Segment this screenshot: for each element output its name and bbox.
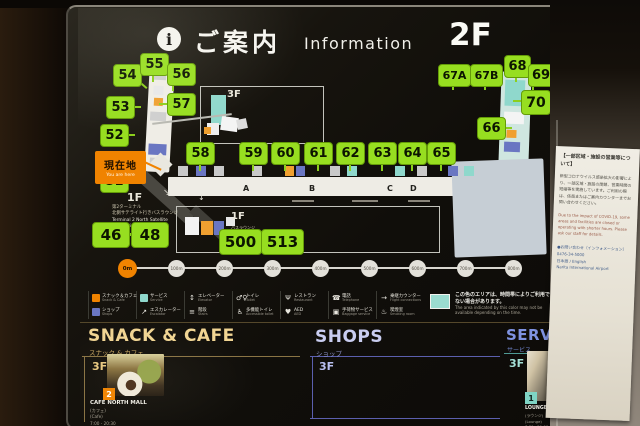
you-are-here-marker: 現在地 You are here [95, 151, 146, 184]
legend-en: Elevator [198, 299, 224, 303]
scale-mark: 600m [409, 260, 426, 277]
gate-tag-56: 56 [167, 63, 196, 86]
gate-tag-67b: 67B [470, 64, 503, 87]
cafe-caption: (カフェ) (Cafe) 7:00 - 20:30 [90, 408, 116, 426]
gate-tag-55: 55 [140, 53, 169, 76]
inset-3f-label: 3F [227, 89, 241, 100]
map-room-shop [196, 166, 206, 176]
legend-item-smoking: ♨ 喫煙室Smoking room [380, 306, 426, 318]
legend-item-shops: ショップShops [92, 306, 138, 318]
snack-floor-tag: 3F [92, 360, 107, 373]
walkway-arrow-icon: ↘ [163, 188, 171, 198]
snack-item-badge: 2 [103, 388, 115, 400]
shops-title: SHOPS [315, 327, 383, 347]
gate-tag-67a: 67A [438, 64, 471, 87]
notice-placard: 【一部区域・施設の営業等について】 新型コロナウイルス感染拡大の影響により、一部… [546, 146, 640, 421]
map-room [330, 166, 340, 176]
gate-tag-57: 57 [167, 93, 196, 116]
scale-mark: 800m [505, 260, 522, 277]
smoking-room-icon: ♨ [380, 308, 388, 316]
shops-subtitle: ショップ [316, 348, 342, 358]
snack-cafe-title: SNACK & CAFE [88, 326, 235, 346]
map-tiny-label [352, 200, 378, 202]
gate-tag-46: 46 [92, 222, 130, 248]
you-are-here-jp: 現在地 [104, 157, 137, 172]
placard-contact: ●お問い合わせ（インフォメーション） 0476-34-5000 日本語 / En… [556, 244, 631, 273]
map-room-service [395, 166, 405, 176]
caption-line: 7:00 - 20:30 [90, 421, 116, 426]
map-room-snack [201, 221, 213, 235]
shops-floor-tag: 3F [319, 360, 334, 373]
placard-title: 【一部区域・施設の営業等について】 [560, 153, 635, 171]
sign-title-japanese: ご案内 [194, 23, 281, 59]
map-room-snack [506, 130, 516, 138]
elevator-icon: ↕ [188, 294, 196, 302]
gate-tag-64: 64 [398, 142, 427, 165]
legend-en: Stairs [198, 313, 208, 317]
legend-en: Toilet [246, 299, 259, 303]
gate-tag-68: 68 [504, 55, 531, 78]
walkway-arrow-icon: ↓ [198, 193, 205, 202]
service-item-badge: 1 [525, 392, 537, 404]
map-room [185, 217, 199, 235]
toilet-icon: ♂♀ [236, 294, 244, 302]
legend-item-accessible-toilet: ♿ 多機能トイレAccessible toilet [236, 306, 282, 318]
scale-mark: 300m [264, 260, 281, 277]
shop-color-swatch [92, 308, 100, 316]
gate-tag-70: 70 [521, 90, 551, 115]
legend-en: AED [294, 313, 303, 317]
sign-title-english: Information [304, 34, 413, 53]
caption-line: 北側サテライト行きバスラウンジ [112, 211, 178, 217]
legend-item-escalator: ↗ エスカレーターEscalator [140, 306, 186, 318]
scale-mark: 700m [457, 260, 474, 277]
legend-en: Escalator [150, 313, 181, 317]
gate-tag-61: 61 [304, 142, 333, 165]
snack-vline [84, 356, 85, 422]
legend-item-service: サービスService [140, 292, 186, 304]
legend-en: Restaurant [294, 299, 316, 303]
map-room [150, 112, 166, 122]
gate-tag-48: 48 [131, 222, 169, 248]
transfer-counter-icon: → [380, 294, 388, 302]
gate-tag-66: 66 [477, 117, 506, 140]
wheelchair-icon: ♿ [236, 308, 244, 316]
scale-mark: 100m [168, 260, 185, 277]
gate-tag-53: 53 [106, 96, 135, 119]
information-icon: i [157, 27, 181, 51]
gate-tag-52: 52 [100, 124, 129, 147]
background-wall-left [0, 0, 74, 426]
service-floor-tag: 3F [509, 357, 524, 370]
availability-note-jp: この色のエリアは、時間帯によりご利用できない場合があります。 [455, 292, 555, 306]
gate-letter-b: B [309, 184, 315, 193]
map-room [178, 166, 188, 176]
gate-letter-d: D [410, 184, 417, 193]
note-color-swatch [430, 294, 450, 309]
stairs-icon: ≡ [188, 308, 196, 316]
gate-stem [513, 100, 521, 102]
map-room-snack [204, 127, 211, 134]
sections-divider [80, 322, 556, 323]
legend-item-elevator: ↕ エレベーターElevator [188, 292, 234, 304]
legend-en: Accessible toilet [246, 313, 274, 317]
legend-en: Shops [102, 313, 120, 317]
legend-item-aed: ♥ AEDAED [284, 306, 330, 318]
gate-tag-513: 513 [261, 229, 304, 255]
map-room [236, 118, 248, 130]
baggage-icon: ▣ [332, 308, 340, 316]
legend-en: Service [150, 299, 168, 303]
gate-tag-58: 58 [186, 142, 215, 165]
legend-item-snack: スナック＆カフェSnack & Cafe [92, 292, 138, 304]
legend-item-toilet: ♂♀ トイレToilet [236, 292, 282, 304]
escalator-icon: ↗ [140, 308, 148, 316]
gate-tag-54: 54 [113, 64, 142, 87]
legend-item-stairs: ≡ 階段Stairs [188, 306, 234, 318]
map-tiny-label [408, 200, 430, 202]
legend-item-baggage: ▣ 手荷物サービスBaggage service [332, 306, 378, 318]
map-room [214, 166, 224, 176]
gate-tag-62: 62 [336, 142, 365, 165]
map-room [153, 86, 163, 96]
legend-en: Snack & Cafe [102, 299, 137, 303]
gate-tag-59: 59 [239, 142, 268, 165]
restaurant-icon: Ψ [284, 294, 292, 302]
floor-indicator-2f: 2F [449, 17, 492, 53]
left-1f-label: 1F [127, 191, 142, 204]
map-room-service [464, 166, 474, 176]
legend-en: Telephone [342, 299, 359, 303]
gate-letter-c: C [387, 184, 393, 193]
telephone-icon: ☎ [332, 294, 340, 302]
scale-mark: 200m [216, 260, 233, 277]
gate-tag-65: 65 [427, 142, 456, 165]
aed-icon: ♥ [284, 308, 292, 316]
gate-tag-60: 60 [271, 142, 300, 165]
legend-item-restaurant: Ψ レストランRestaurant [284, 292, 330, 304]
photo-of-information-sign: i ご案内 Information 2F ↘ ↓ A B C D [0, 0, 640, 426]
availability-note-en: The area indicated by this color may not… [455, 305, 555, 316]
gate-tag-500: 500 [219, 229, 262, 255]
map-room [417, 166, 427, 176]
scale-mark: 400m [312, 260, 329, 277]
shops-bottom-divider [310, 418, 500, 419]
scale-mark: 500m [361, 260, 378, 277]
snack-color-swatch [92, 294, 100, 302]
you-are-here-en: You are here [106, 173, 135, 178]
map-tiny-label [292, 200, 314, 202]
service-color-swatch [140, 294, 148, 302]
legend-en: Smoking room [390, 313, 415, 317]
placard-body-jp: 新型コロナウイルス感染拡大の影響により、一部区域・施設の閉鎖、営業時間の短縮等を… [559, 173, 634, 209]
right-1f-label: 1F [231, 211, 245, 222]
legend-en: Baggage service [342, 313, 373, 317]
legend-en: Flight connections [390, 299, 421, 303]
cafe-photo [107, 354, 164, 396]
shops-vline [312, 356, 313, 418]
scale-mark-0m: 0m [118, 259, 137, 278]
cafe-name: CAFE NORTH MALL [90, 400, 147, 406]
placard-body-en: Due to the impact of COVID-19, some area… [558, 212, 633, 239]
map-room-snack [285, 166, 294, 176]
legend-item-transfer: → 乗継カウンターFlight connections [380, 292, 426, 304]
map-room-shop [296, 166, 305, 176]
map-room-shop [448, 166, 458, 176]
gate-tag-63: 63 [368, 142, 397, 165]
gate-stem [152, 75, 154, 82]
map-1f-inset: 1F バスラウンジ Bus Lounge [176, 206, 440, 253]
gate-stem [159, 103, 167, 105]
legend-item-telephone: ☎ 電話Telephone [332, 292, 378, 304]
gate-letter-a: A [243, 184, 249, 193]
map-room-shop [504, 142, 520, 153]
